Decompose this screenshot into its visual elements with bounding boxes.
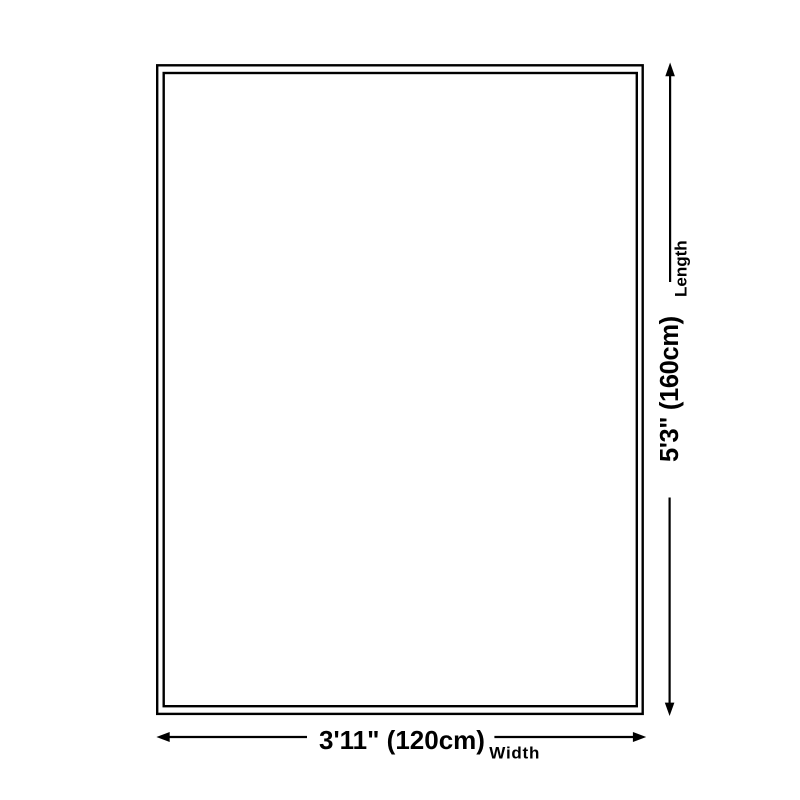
svg-text:5'3" (160cm): 5'3" (160cm) [656, 316, 684, 462]
svg-text:Width: Width [489, 744, 540, 763]
svg-text:Length: Length [672, 240, 691, 297]
svg-text:3'11" (120cm): 3'11" (120cm) [319, 725, 485, 755]
